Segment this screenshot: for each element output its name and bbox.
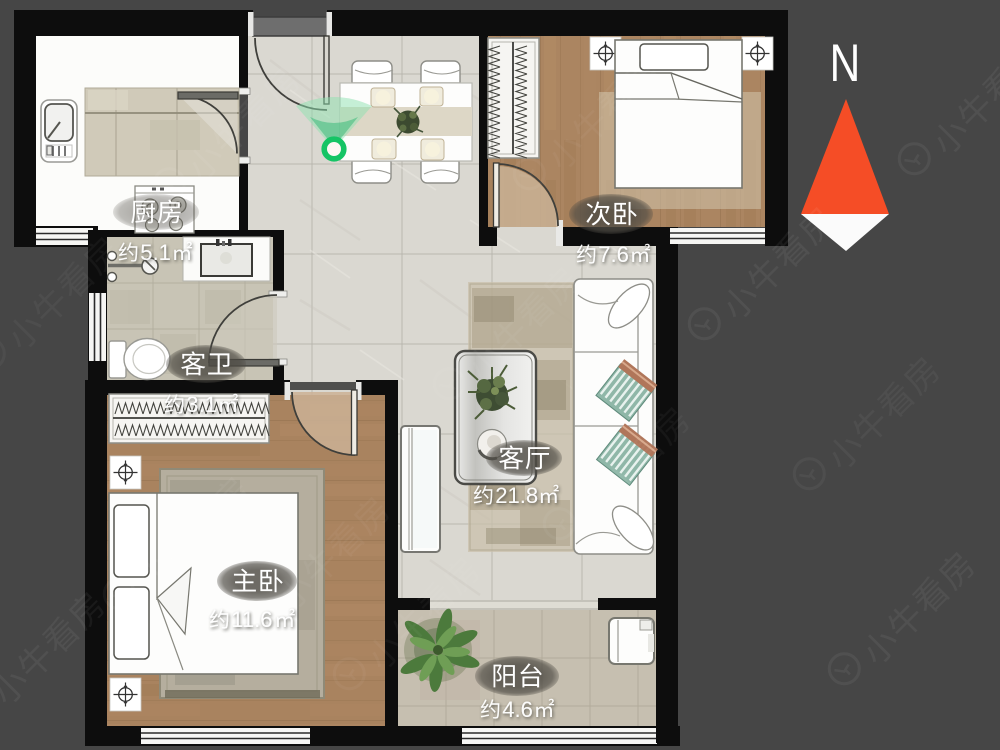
svg-text:N: N bbox=[830, 35, 861, 94]
svg-text:4.6: 4.6 bbox=[502, 697, 533, 722]
svg-text:21.8: 21.8 bbox=[495, 483, 538, 508]
svg-text:3.1: 3.1 bbox=[186, 392, 217, 417]
svg-text:7.6: 7.6 bbox=[598, 242, 629, 267]
svg-text:5.1: 5.1 bbox=[140, 240, 171, 265]
